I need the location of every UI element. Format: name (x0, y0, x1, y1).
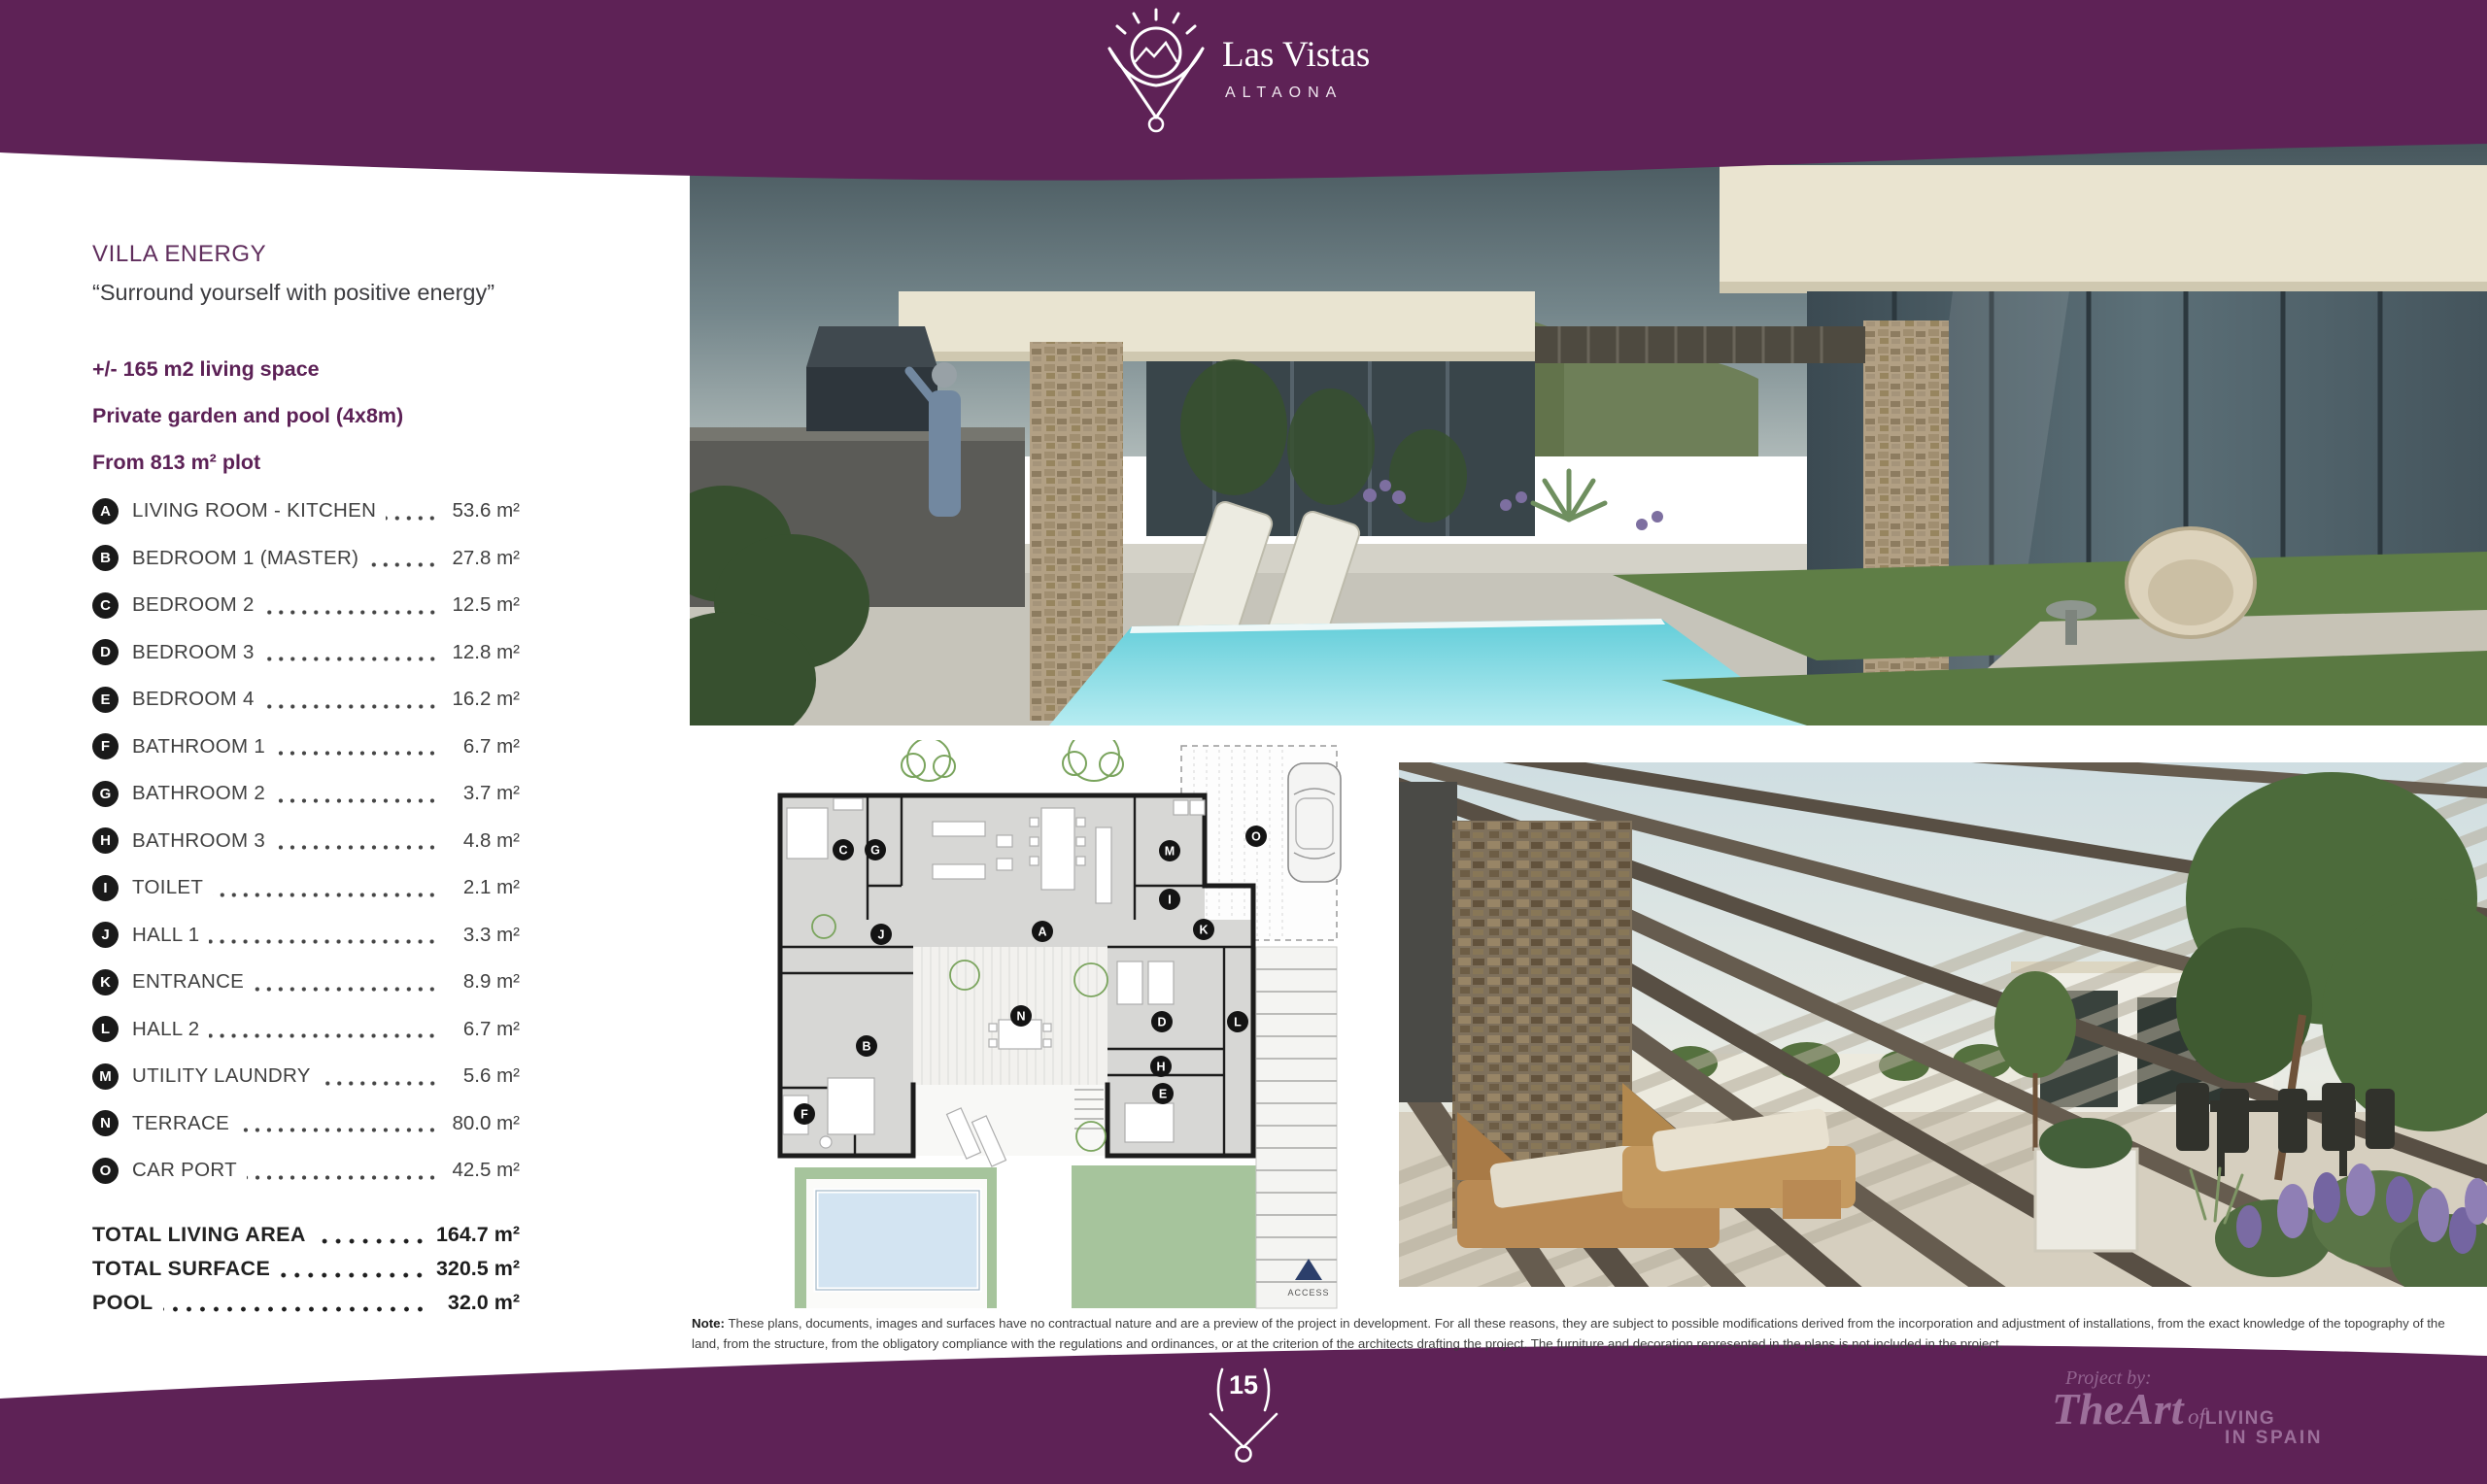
totals-list: TOTAL LIVING AREA 164.7 m² TOTAL SURFACE… (92, 1218, 520, 1320)
room-letter-badge: D (92, 639, 119, 665)
svg-text:H: H (1156, 1061, 1165, 1074)
svg-text:K: K (1199, 924, 1208, 937)
dotted-leader (275, 798, 438, 803)
total-label: POOL (92, 1291, 153, 1315)
logo-the: The (2052, 1384, 2124, 1433)
dotted-leader (264, 657, 438, 661)
room-label: BATHROOM 1 (132, 735, 265, 759)
svg-text:O: O (1251, 830, 1261, 844)
room-row: A LIVING ROOM - KITCHEN 53.6 m² (92, 488, 520, 535)
room-label: ENTRANCE (132, 970, 244, 994)
highlight-line: +/- 165 m2 living space (92, 346, 520, 392)
villa-exterior-photo (690, 136, 2487, 725)
room-letter-badge: I (92, 875, 119, 901)
room-row: B BEDROOM 1 (MASTER) 27.8 m² (92, 535, 520, 583)
dotted-leader (316, 1238, 426, 1244)
room-letter-badge: G (92, 781, 119, 807)
room-area: 6.7 m² (448, 735, 520, 759)
villa-info-panel: VILLA ENERGY “Surround yourself with pos… (92, 239, 520, 1320)
room-label: BEDROOM 2 (132, 593, 255, 617)
room-label: TOILET (132, 876, 203, 899)
total-row: TOTAL LIVING AREA 164.7 m² (92, 1218, 520, 1252)
logo-of: of (2188, 1404, 2205, 1429)
access-label: ACCESS (1287, 1288, 1329, 1298)
dotted-leader (264, 610, 438, 615)
room-area: 3.7 m² (448, 782, 520, 805)
brand-subname: ALTAONA (1225, 84, 1343, 101)
svg-text:D: D (1157, 1016, 1166, 1029)
brand-name: Las Vistas (1222, 35, 1370, 75)
room-letter-badge: J (92, 922, 119, 948)
svg-text:N: N (1016, 1010, 1025, 1024)
sun-icon (1117, 10, 1195, 77)
svg-text:C: C (838, 844, 847, 858)
dotted-leader (254, 987, 438, 992)
total-row: TOTAL SURFACE 320.5 m² (92, 1252, 520, 1286)
room-letter-badge: M (92, 1063, 119, 1090)
terrace-photo (1399, 762, 2487, 1287)
room-area: 2.1 m² (448, 876, 520, 899)
floor-plan: ACCESS ABCDEFGHIJKLMNO (766, 740, 1358, 1323)
total-area: 320.5 m² (436, 1257, 520, 1281)
note-text: These plans, documents, images and surfa… (692, 1316, 2445, 1351)
page-number-marker: 15 (1181, 1358, 1306, 1468)
room-area: 12.8 m² (448, 641, 520, 664)
svg-text:B: B (862, 1040, 870, 1054)
room-row: D BEDROOM 3 12.8 m² (92, 629, 520, 677)
dotted-leader (275, 751, 438, 756)
room-row: J HALL 1 3.3 m² (92, 912, 520, 960)
room-area: 53.6 m² (448, 499, 520, 523)
room-label: BEDROOM 1 (MASTER) (132, 547, 358, 570)
dotted-leader (280, 1272, 426, 1278)
highlight-line: Private garden and pool (4x8m) (92, 392, 520, 439)
svg-text:I: I (1168, 894, 1171, 907)
room-row: C BEDROOM 2 12.5 m² (92, 582, 520, 629)
dotted-leader (368, 562, 438, 567)
room-area: 5.6 m² (448, 1064, 520, 1088)
note-label: Note: (692, 1316, 725, 1331)
project-by-label: Project by: (2065, 1367, 2402, 1390)
room-label: HALL 2 (132, 1018, 199, 1041)
room-label: TERRACE (132, 1112, 229, 1135)
highlight-list: +/- 165 m2 living spacePrivate garden an… (92, 346, 520, 486)
svg-text:M: M (1165, 845, 1175, 859)
highlight-line: From 813 m² plot (92, 439, 520, 486)
room-row: H BATHROOM 3 4.8 m² (92, 818, 520, 865)
room-letter-badge: K (92, 969, 119, 995)
dotted-leader (209, 1033, 438, 1038)
dotted-leader (386, 516, 438, 521)
room-row: I TOILET 2.1 m² (92, 864, 520, 912)
room-area: 27.8 m² (448, 547, 520, 570)
svg-text:J: J (878, 928, 885, 942)
total-label: TOTAL LIVING AREA (92, 1223, 306, 1247)
room-label: UTILITY LAUNDRY (132, 1064, 311, 1088)
room-label: BEDROOM 3 (132, 641, 255, 664)
room-row: N TERRACE 80.0 m² (92, 1100, 520, 1148)
room-letter-badge: F (92, 733, 119, 759)
dotted-leader (239, 1128, 438, 1132)
villa-title: VILLA ENERGY (92, 239, 520, 270)
room-letter-badge: E (92, 687, 119, 713)
room-row: K ENTRANCE 8.9 m² (92, 959, 520, 1006)
room-list: A LIVING ROOM - KITCHEN 53.6 m² B BEDROO… (92, 488, 520, 1195)
room-letter-badge: C (92, 592, 119, 619)
logo-living: LIVING (2205, 1408, 2275, 1429)
room-label: HALL 1 (132, 924, 199, 947)
room-letter-badge: A (92, 498, 119, 524)
room-label: LIVING ROOM - KITCHEN (132, 499, 376, 523)
room-label: BATHROOM 2 (132, 782, 265, 805)
wings-loop-icon (1109, 49, 1203, 131)
project-by-logo: Project by: TheArt ofLIVING IN SPAIN (2052, 1367, 2402, 1449)
brand-logo: Las Vistas ALTAONA (1096, 6, 1416, 137)
room-row: F BATHROOM 1 6.7 m² (92, 724, 520, 771)
room-letter-badge: B (92, 545, 119, 571)
svg-text:E: E (1159, 1088, 1167, 1101)
logo-in-spain: IN SPAIN (2225, 1428, 2402, 1449)
total-area: 164.7 m² (436, 1223, 520, 1247)
svg-text:A: A (1038, 926, 1046, 939)
room-area: 3.3 m² (448, 924, 520, 947)
room-area: 42.5 m² (448, 1159, 520, 1182)
svg-text:G: G (870, 844, 880, 858)
room-row: O CAR PORT 42.5 m² (92, 1147, 520, 1195)
dotted-leader (321, 1081, 438, 1086)
total-area: 32.0 m² (436, 1291, 520, 1315)
legal-note: Note: These plans, documents, images and… (692, 1313, 2455, 1355)
svg-text:F: F (801, 1108, 808, 1122)
total-label: TOTAL SURFACE (92, 1257, 270, 1281)
dotted-leader (163, 1306, 426, 1312)
room-label: BATHROOM 3 (132, 829, 265, 853)
room-row: M UTILITY LAUNDRY 5.6 m² (92, 1053, 520, 1100)
room-row: E BEDROOM 4 16.2 m² (92, 676, 520, 724)
page-number: 15 (1229, 1370, 1258, 1400)
logo-art: Art (2124, 1384, 2183, 1433)
villa-quote: “Surround yourself with positive energy” (92, 276, 520, 309)
room-area: 6.7 m² (448, 1018, 520, 1041)
room-area: 4.8 m² (448, 829, 520, 853)
room-area: 16.2 m² (448, 688, 520, 711)
svg-text:L: L (1234, 1016, 1242, 1029)
room-row: L HALL 2 6.7 m² (92, 1006, 520, 1054)
room-area: 8.9 m² (448, 970, 520, 994)
room-area: 80.0 m² (448, 1112, 520, 1135)
room-letter-badge: H (92, 827, 119, 854)
car-icon (1288, 763, 1341, 882)
room-letter-badge: L (92, 1016, 119, 1042)
room-area: 12.5 m² (448, 593, 520, 617)
room-row: G BATHROOM 2 3.7 m² (92, 770, 520, 818)
dotted-leader (275, 845, 438, 850)
dotted-leader (209, 939, 438, 944)
dotted-leader (247, 1175, 438, 1180)
room-label: BEDROOM 4 (132, 688, 255, 711)
room-letter-badge: N (92, 1110, 119, 1136)
dotted-leader (264, 704, 438, 709)
dotted-leader (213, 893, 438, 897)
room-letter-badge: O (92, 1158, 119, 1184)
room-label: CAR PORT (132, 1159, 237, 1182)
